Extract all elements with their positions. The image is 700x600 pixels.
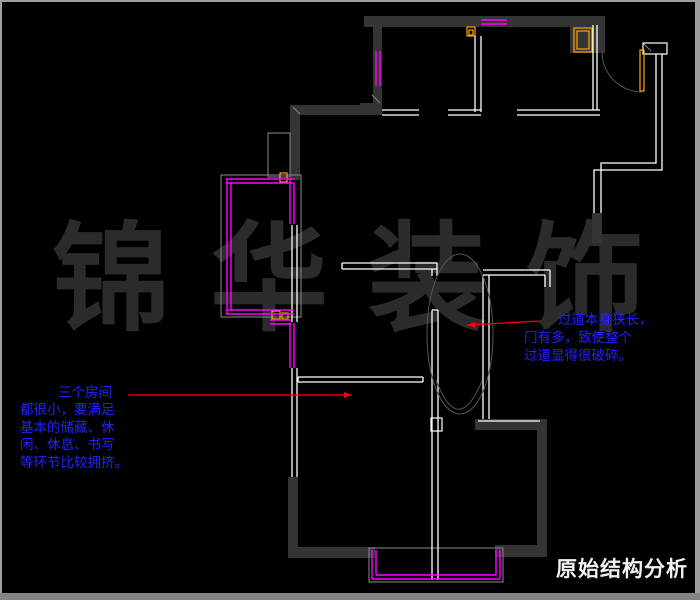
cad-canvas: 锦华装饰 三个房间 都很小，要满足 基本的储藏、休 闲、休息、书写 等环节比较拥… <box>0 0 700 600</box>
right-annotation-line: 过道本身狭长， <box>524 311 674 329</box>
left-annotation-line: 都很小，要满足 <box>20 401 150 418</box>
left-annotation-line: 等环节比较拥挤。 <box>20 454 150 471</box>
left-annotation: 三个房间 都很小，要满足 基本的储藏、休 闲、休息、书写 等环节比较拥挤。 <box>20 384 150 471</box>
right-annotation-line: 门有多，致使整个 <box>524 329 674 347</box>
right-annotation-line: 过道显得很破碎。 <box>524 347 674 365</box>
left-annotation-line: 基本的储藏、休 <box>20 419 150 436</box>
left-annotation-line: 闲、休息、书写 <box>20 436 150 453</box>
drawing-title: 原始结构分析 <box>556 553 688 583</box>
right-annotation: 过道本身狭长， 门有多，致使整个 过道显得很破碎。 <box>524 311 674 365</box>
floor-plan <box>0 0 700 600</box>
left-annotation-line: 三个房间 <box>20 384 150 401</box>
